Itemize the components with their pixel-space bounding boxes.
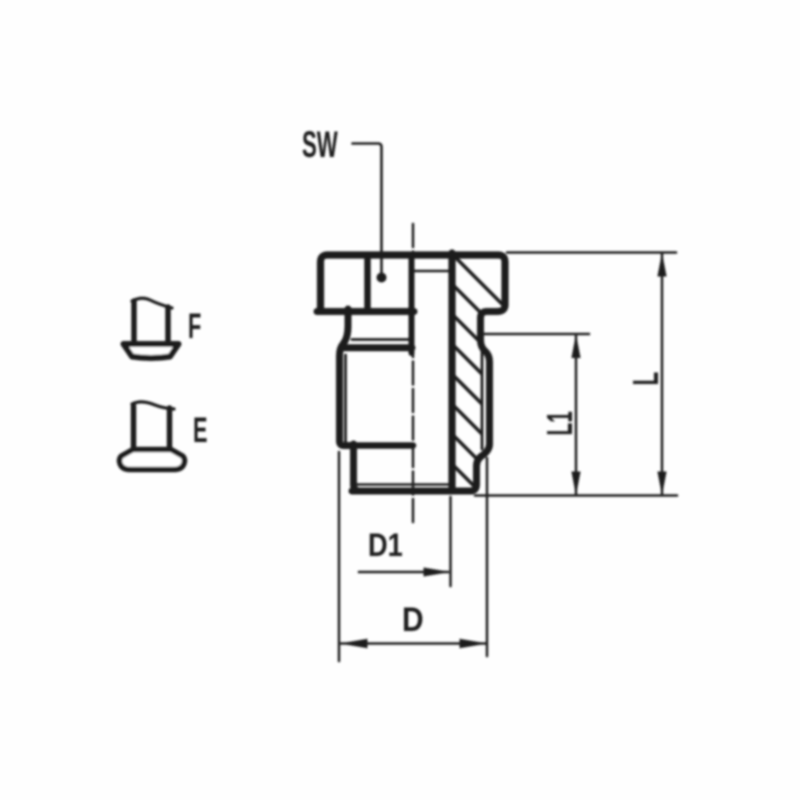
svg-text:L: L <box>627 372 667 386</box>
svg-text:L1: L1 <box>540 411 580 435</box>
svg-text:F: F <box>188 308 201 346</box>
svg-text:E: E <box>193 412 207 450</box>
svg-text:SW: SW <box>302 124 338 165</box>
svg-text:D: D <box>402 600 424 638</box>
svg-text:D1: D1 <box>368 528 403 564</box>
